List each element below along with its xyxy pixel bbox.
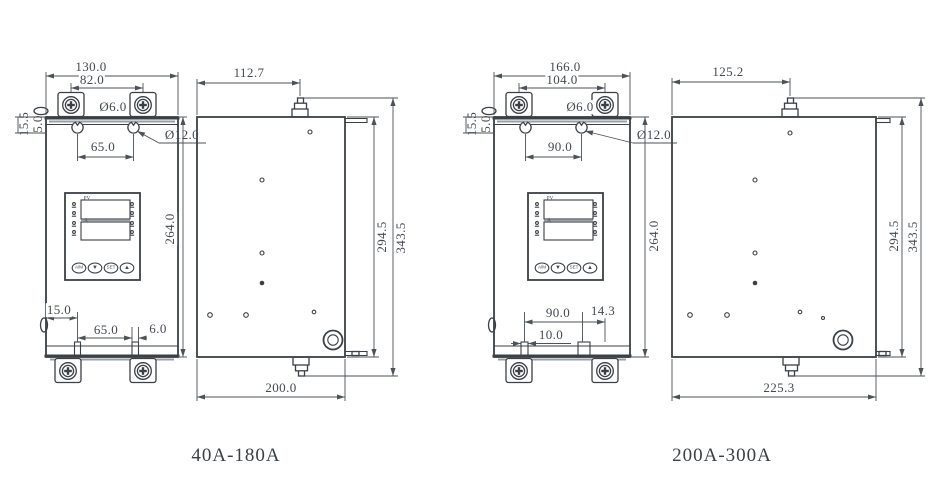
- dim-overall-height-u1: 343.5: [394, 221, 408, 254]
- vent-hole: [260, 251, 264, 255]
- dim-hanger-thickness-u1: 5.0: [31, 115, 45, 132]
- dim-mount-height-u2: 294.5: [887, 219, 901, 252]
- vent-hole: [753, 281, 758, 286]
- dim-depth-to-stud-u2: 125.2: [711, 65, 744, 79]
- dim-mount-spacing-u1: 82.0: [79, 73, 105, 87]
- dim-overall-depth-u1: 200.0: [264, 381, 297, 395]
- button-up: ▲: [124, 265, 130, 271]
- vent-hole: [753, 178, 757, 182]
- dim-body-height-u1: 264.0: [163, 212, 177, 245]
- technical-drawing-canvas: 130.0 82.0 Ø6.0 Ø12.0 65.0 15.5 5.0 264.…: [0, 0, 945, 490]
- vent-hole: [822, 317, 825, 320]
- front-view-unit2: [463, 72, 677, 383]
- vent-hole: [308, 130, 312, 134]
- dim-hanger-thickness-u2: 5.0: [479, 115, 493, 132]
- display-label-a: A: [84, 218, 88, 223]
- dim-hang-hole-dia-u1: Ø12.0: [165, 128, 199, 142]
- vent-hole: [688, 313, 693, 318]
- dim-keyhole-spacing-u1: 65.0: [90, 140, 116, 154]
- dim-overall-height-u2: 343.5: [906, 220, 920, 253]
- vent-hole: [725, 313, 730, 318]
- enclosure-side: [197, 117, 345, 357]
- grommet-hole: [834, 331, 853, 350]
- grommet-hole: [324, 331, 343, 350]
- vent-hole: [753, 251, 757, 255]
- mount-slot: [578, 342, 590, 357]
- caption-unit1: 40A-180A: [190, 446, 281, 466]
- dim-foot-spacing-u2: 90.0: [545, 306, 571, 320]
- vent-hole: [260, 178, 264, 182]
- caption-unit2: 200A-300A: [671, 446, 773, 466]
- vent-hole: [260, 281, 265, 286]
- button-set: SET: [107, 266, 116, 271]
- drawing-linework: [0, 0, 945, 490]
- button-down: ▼: [92, 265, 98, 271]
- dim-overall-depth-u2: 225.3: [762, 381, 795, 395]
- vent-hole: [788, 131, 792, 135]
- display-label-pv: PV: [547, 196, 553, 201]
- button-auto-manual: A/M: [75, 266, 83, 271]
- button-down: ▼: [555, 265, 561, 271]
- dim-mount-height-u1: 294.5: [375, 220, 389, 253]
- mount-slot: [132, 342, 139, 357]
- enclosure-side: [672, 117, 876, 357]
- dim-top-offset-u1: 15.5: [17, 112, 31, 136]
- dim-mount-hole-dia-u2: Ø6.0: [565, 100, 594, 114]
- display-label-pv: PV: [84, 196, 90, 201]
- dim-foot-left-offset-u1: 15.0: [46, 303, 72, 317]
- button-auto-manual: A/M: [538, 266, 546, 271]
- mount-slot: [521, 342, 528, 357]
- mount-slot: [75, 342, 81, 357]
- dim-top-offset-u2: 15.5: [465, 112, 479, 136]
- button-set: SET: [570, 266, 579, 271]
- dim-mount-hole-dia-u1: Ø6.0: [98, 100, 127, 114]
- dim-hang-hole-dia-u2: Ø12.0: [637, 128, 671, 142]
- dim-depth-to-stud-u1: 112.7: [233, 66, 266, 80]
- vent-hole: [244, 313, 249, 318]
- button-up: ▲: [587, 265, 593, 271]
- vent-hole: [208, 313, 213, 318]
- dim-slot-width-u1: 6.0: [148, 322, 167, 336]
- vent-hole: [798, 310, 802, 314]
- display-label-a: A: [547, 218, 551, 223]
- dim-body-height-u2: 264.0: [647, 219, 661, 252]
- vent-hole: [312, 310, 316, 314]
- dim-slot-width-u2: 14.3: [590, 304, 616, 318]
- dim-keyhole-spacing-u2: 90.0: [547, 140, 573, 154]
- dim-foot-left-offset-u2: 10.0: [538, 328, 564, 342]
- side-view-unit1: [197, 79, 398, 401]
- dim-foot-spacing-u1: 65.0: [93, 323, 119, 337]
- dim-mount-spacing-u2: 104.0: [545, 73, 578, 87]
